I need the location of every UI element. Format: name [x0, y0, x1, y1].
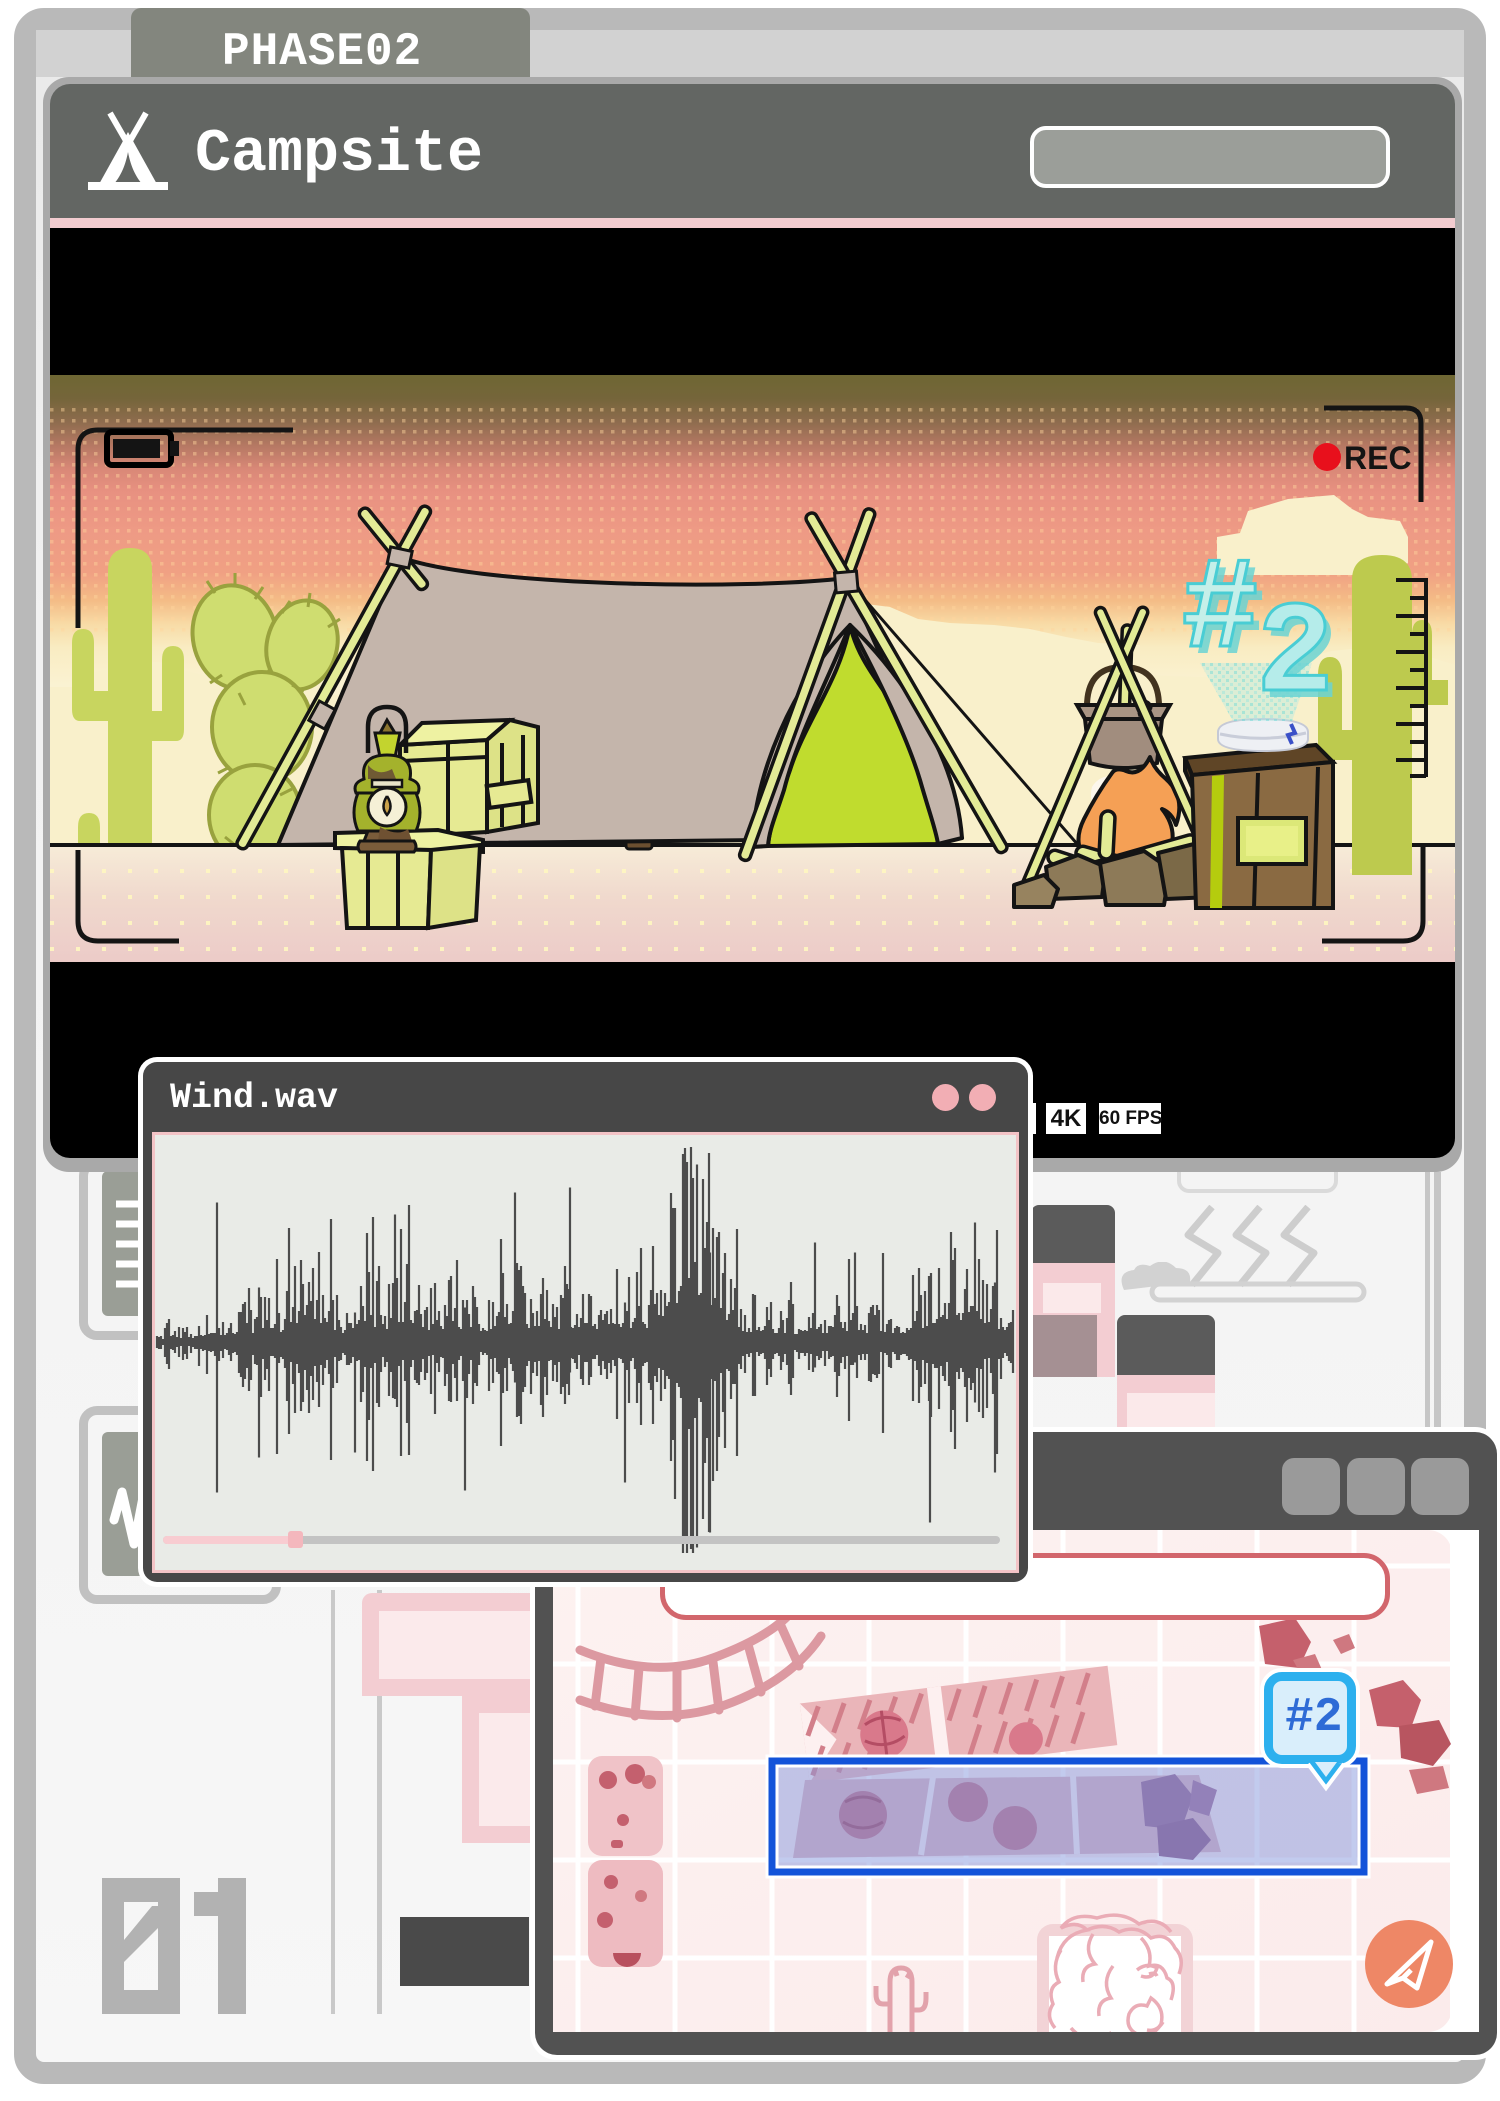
- svg-text:REC: REC: [1344, 440, 1412, 476]
- svg-text:2: 2: [1256, 583, 1334, 730]
- svg-text:#: #: [1181, 539, 1259, 686]
